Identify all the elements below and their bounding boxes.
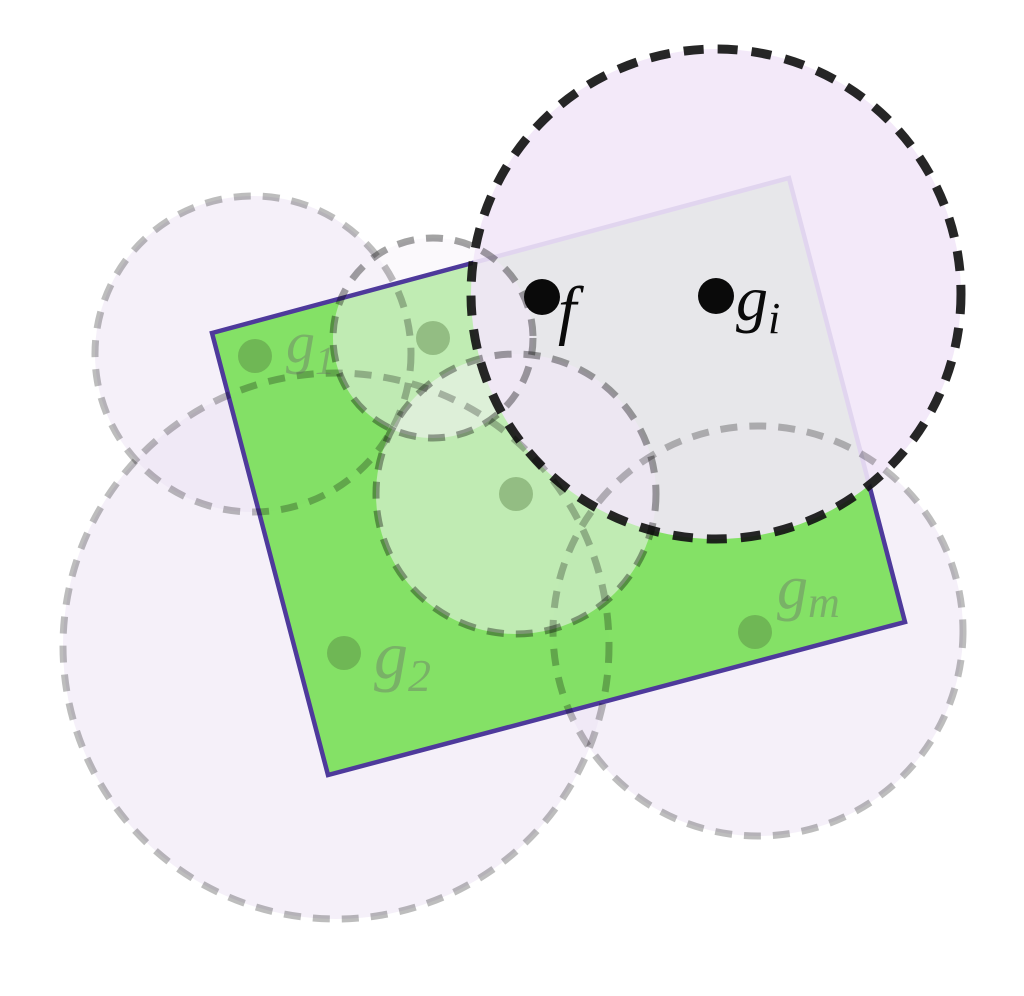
label-gi-subscript: i bbox=[768, 294, 780, 343]
point-g1-dot bbox=[238, 339, 272, 373]
point-upper-mid-dot bbox=[416, 321, 450, 355]
diagram-canvas: g1 g2 gm f gi bbox=[0, 0, 1024, 996]
label-g1-main: g bbox=[286, 310, 315, 375]
label-gm-subscript: m bbox=[808, 578, 840, 627]
label-gi-main: g bbox=[736, 263, 768, 334]
label-g2-subscript: 2 bbox=[408, 650, 431, 701]
label-g1-subscript: 1 bbox=[315, 338, 335, 383]
point-gm-dot bbox=[738, 615, 772, 649]
label-g2-main: g bbox=[374, 617, 408, 693]
label-gm-main: g bbox=[777, 554, 808, 622]
point-gi-dot bbox=[698, 278, 734, 314]
figure-covering-diagram: g1 g2 gm f gi bbox=[0, 0, 1024, 996]
point-g2-dot bbox=[327, 636, 361, 670]
point-f-dot bbox=[524, 279, 560, 315]
point-center-dot bbox=[499, 477, 533, 511]
